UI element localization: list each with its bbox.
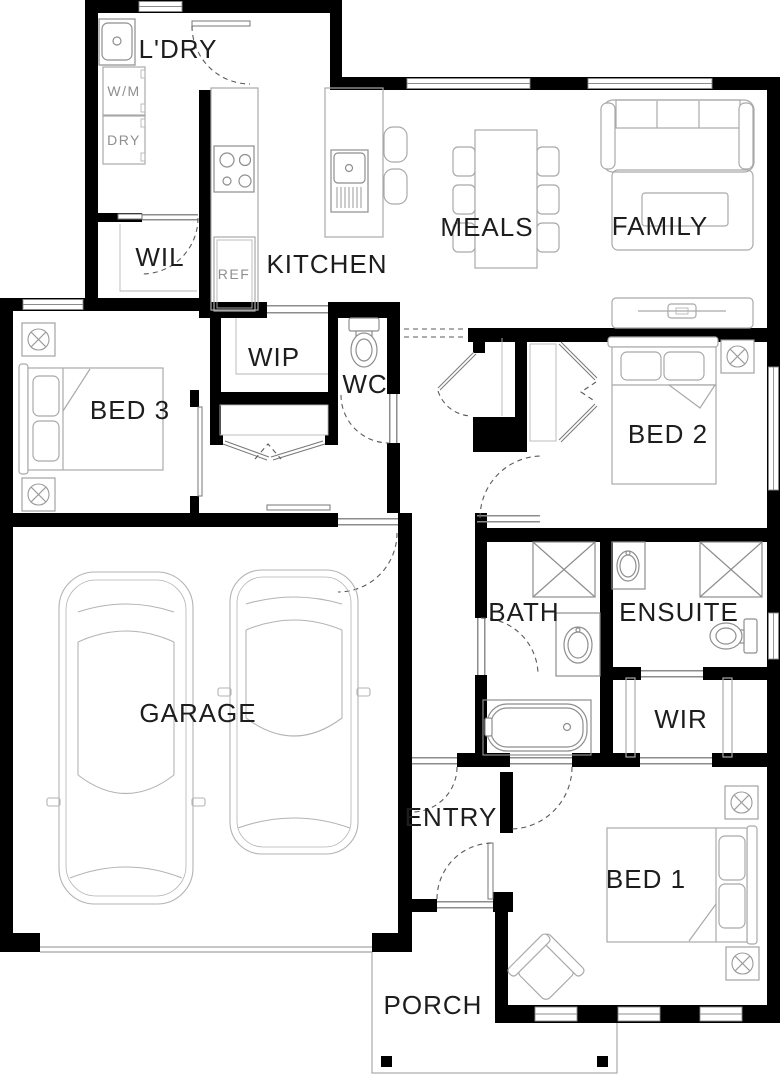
sofa	[601, 100, 754, 172]
bed2-bed	[608, 337, 718, 484]
bed3-pillow	[33, 376, 59, 416]
linen-shelf	[220, 405, 328, 435]
bath-vanity	[556, 613, 600, 676]
room-label-laundry: L'DRY	[139, 34, 218, 64]
room-label-family: FAMILY	[612, 211, 709, 241]
coats-door-swing	[438, 391, 471, 416]
dining-table	[475, 130, 537, 268]
bed1-window-1	[535, 1007, 577, 1021]
bed3-door-leaf	[198, 407, 202, 496]
bed1-window-2	[618, 1007, 660, 1021]
armchair	[506, 931, 585, 1010]
room-label-entry: ENTRY	[405, 802, 498, 832]
fridge-label: REF	[218, 266, 251, 282]
porch-post	[381, 1056, 392, 1067]
washer-label: W/M	[107, 83, 140, 99]
wc-toilet	[349, 318, 379, 367]
ensuite-shower	[700, 542, 762, 597]
dining-chair	[537, 223, 559, 252]
dining-chair	[537, 185, 559, 214]
room-label-ensuite: ENSUITE	[619, 597, 739, 627]
bed1-pillow	[719, 836, 745, 880]
tv-unit	[612, 298, 753, 328]
bar-stool	[384, 127, 407, 162]
meals-window	[407, 79, 530, 89]
floor-plan: L'DRY WIL KITCHEN WIP WC MEALS FAMILY BE…	[0, 0, 781, 1079]
bed1-window-3	[700, 1007, 742, 1021]
bed2-door-swing	[480, 456, 542, 518]
light-symbol	[721, 340, 754, 373]
ensuite-window	[769, 613, 779, 659]
room-label-bath: BATH	[488, 597, 559, 627]
room-label-bed3: BED 3	[90, 395, 170, 425]
room-label-meals: MEALS	[440, 212, 533, 242]
light-symbol	[22, 323, 55, 356]
bed2-robe-shelf	[530, 344, 556, 441]
dryer-label: DRY	[107, 132, 141, 148]
laundry-window	[139, 2, 182, 12]
garage-door-swing	[338, 533, 397, 592]
family-window	[588, 79, 712, 89]
room-label-wir: WIR	[654, 704, 708, 734]
bar-stool	[384, 169, 407, 204]
island-sink	[331, 150, 368, 212]
bed2-headboard	[608, 337, 718, 347]
room-label-bed2: BED 2	[628, 419, 708, 449]
bed2-window	[769, 367, 779, 490]
dining-chair	[453, 147, 475, 176]
robe-door-swing	[581, 382, 596, 402]
room-label-porch: PORCH	[384, 990, 483, 1020]
room-label-bed1: BED 1	[606, 864, 686, 894]
dining-chair	[453, 185, 475, 214]
room-label-kitchen: KITCHEN	[266, 249, 387, 279]
dining-chair	[537, 147, 559, 176]
room-label-wc: WC	[342, 369, 387, 399]
bed1-pillow	[719, 884, 745, 928]
front-door-swing	[437, 843, 493, 899]
dining-setting	[453, 130, 559, 268]
laundry-door-leaf	[192, 21, 250, 26]
bed3-pillow	[33, 421, 59, 461]
cooktop	[214, 146, 254, 192]
bed3-headboard	[19, 364, 28, 474]
bed2-pillow	[621, 352, 661, 380]
garage-car-left	[47, 572, 205, 904]
front-door-leaf	[488, 843, 493, 899]
garage-panel-door	[40, 947, 372, 952]
room-label-garage: GARAGE	[139, 698, 256, 728]
bed3-window	[23, 300, 83, 310]
wc-door-swing	[341, 395, 389, 443]
room-label-wip: WIP	[248, 342, 300, 372]
bath-shower	[533, 542, 595, 597]
wil-door-leaf	[118, 214, 142, 219]
porch-post	[597, 1056, 608, 1067]
light-symbol	[726, 947, 759, 980]
light-symbol	[725, 786, 758, 819]
bed1-door-swing	[510, 767, 572, 829]
bathtub	[483, 700, 591, 755]
light-symbol	[22, 478, 55, 511]
floor-plan-drawing: L'DRY WIL KITCHEN WIP WC MEALS FAMILY BE…	[0, 0, 781, 1079]
garage-door-leaf	[267, 505, 330, 510]
ensuite-vanity	[612, 542, 645, 589]
bed1-headboard	[747, 826, 757, 944]
room-label-wil: WIL	[135, 242, 184, 272]
bed2-pillow	[664, 352, 704, 380]
laundry-trough	[99, 19, 135, 65]
